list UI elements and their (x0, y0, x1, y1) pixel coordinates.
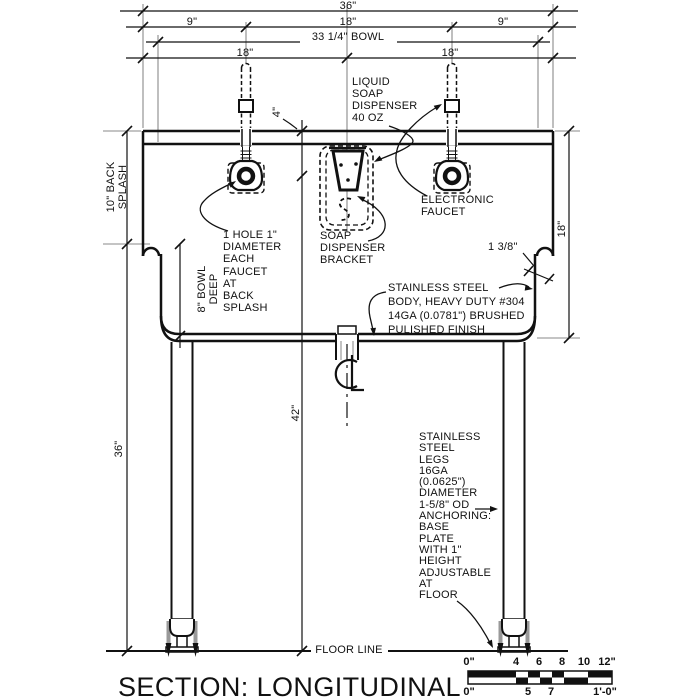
adjustable-foot (502, 619, 526, 636)
scale-tick-label: 7 (548, 686, 554, 698)
dim-faucet-spacing: 18" (340, 16, 357, 28)
supply-union (239, 100, 253, 112)
dim-rim-roll: 1 3/8" (488, 241, 518, 253)
dim-edge-to-center-left: 18" (237, 47, 254, 59)
right-leg (498, 342, 531, 657)
dim-body-height: 18" (556, 221, 568, 238)
callout-legs-spec: STAINLESS STEEL LEGS 16GA (0.0625") DIAM… (419, 432, 491, 601)
scale-tick-label: 0" (463, 656, 474, 668)
left-faucet (228, 64, 264, 194)
supply-union (445, 100, 459, 112)
callout-soap-dispenser: LIQUID SOAP DISPENSER 40 OZ (352, 76, 417, 124)
dim-rim-height: 36" (113, 441, 125, 458)
centerline-symbol (336, 360, 357, 388)
scale-tick-label: 8 (559, 656, 565, 668)
scale-tick-label: 12" (598, 656, 615, 668)
scale-tick-label: 5 (525, 686, 531, 698)
right-faucet (434, 64, 470, 194)
callout-electronic-faucet: ELECTRONIC FAUCET (421, 194, 494, 218)
floor-line-label: FLOOR LINE (315, 644, 382, 656)
dim-dispenser-height: 42" (290, 405, 302, 422)
scale-tick-label: 4 (513, 656, 519, 668)
callout-body-spec: STAINLESS STEEL BODY, HEAVY DUTY #304 14… (388, 281, 525, 337)
dim-left-offset: 9" (187, 16, 197, 28)
dim-back-splash: 10" BACK SPLASH (105, 162, 129, 213)
dim-edge-to-center-right: 18" (442, 47, 459, 59)
right-rim-roll (537, 248, 553, 256)
dim-faucet-drop: 4" (271, 107, 283, 117)
left-rim-roll (143, 248, 159, 256)
scale-bar-graphic (468, 671, 612, 684)
dim-bowl-depth: 8" BOWL DEEP (196, 266, 220, 313)
dispenser-bracket-shape (333, 151, 363, 190)
scale-tick-label: 1'-0" (593, 686, 617, 698)
drawing-title: SECTION: LONGITUDINAL (118, 672, 461, 700)
soap-bottle-outline (339, 198, 351, 220)
adjustable-foot (170, 619, 194, 636)
faucet-outlet (445, 169, 459, 183)
section-drawing (0, 0, 700, 700)
dim-right-offset: 9" (498, 16, 508, 28)
drawing-sheet: 36" 9" 18" 9" 33 1/4" BOWL 18" 18" 10" B… (0, 0, 700, 700)
scale-tick-label: 10 (578, 656, 590, 668)
faucet-outlet (239, 169, 253, 183)
left-leg (166, 342, 199, 657)
scale-tick-label: 0" (463, 686, 474, 698)
callout-dispenser-bracket: SOAP DISPENSER BRACKET (320, 230, 385, 266)
scale-tick-label: 6 (536, 656, 542, 668)
callout-faucet-hole: 1 HOLE 1" DIAMETER EACH FAUCET AT BACK S… (223, 229, 281, 314)
dim-bowl-width: 33 1/4" BOWL (312, 31, 384, 43)
dim-overall-width: 36" (340, 0, 357, 12)
